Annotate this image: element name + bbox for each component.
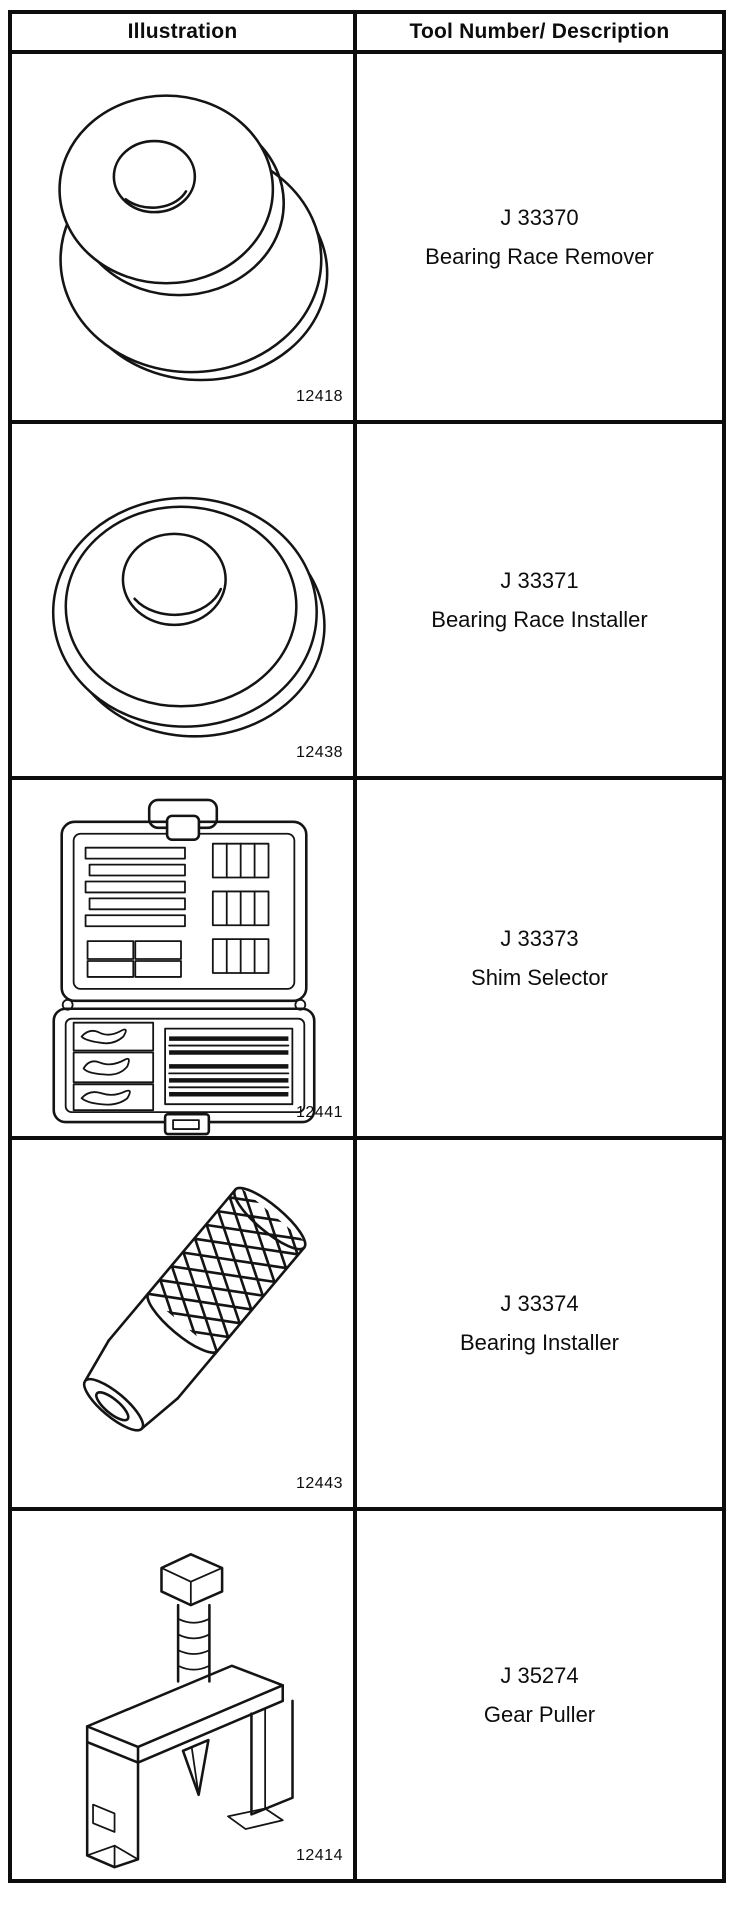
figure-number: 12438 [296, 744, 343, 762]
illustration-cell: 12443 [12, 1140, 357, 1507]
illustration-cell: 12414 [12, 1511, 357, 1879]
figure-number: 12414 [296, 1847, 343, 1865]
table-row: 12418 J 33370 Bearing Race Remover [12, 54, 722, 424]
knurled-bearing-installer-icon [33, 1152, 333, 1492]
tool-cell: J 33373 Shim Selector [357, 780, 722, 1136]
header-illustration: Illustration [12, 14, 357, 50]
scanned-manual-page: Illustration Tool Number/ Description 12… [0, 0, 736, 1910]
tool-cell: J 33370 Bearing Race Remover [357, 54, 722, 420]
tool-number: J 33373 [500, 926, 578, 952]
tool-number: J 33371 [500, 568, 578, 594]
figure-number: 12418 [296, 388, 343, 406]
tool-description: Gear Puller [484, 1702, 595, 1728]
table-row: 12414 J 35274 Gear Puller [12, 1511, 722, 1879]
tool-cell: J 33374 Bearing Installer [357, 1140, 722, 1507]
tool-number: J 35274 [500, 1663, 578, 1689]
tool-description: Shim Selector [471, 965, 608, 991]
shim-selector-case-icon [33, 792, 333, 1136]
gear-puller-icon [33, 1523, 333, 1875]
table-row: 12438 J 33371 Bearing Race Installer [12, 424, 722, 780]
tool-description: Bearing Race Installer [431, 607, 647, 633]
table-header-row: Illustration Tool Number/ Description [12, 14, 722, 54]
tool-description: Bearing Race Remover [425, 244, 654, 270]
illustration-cell: 12441 [12, 780, 357, 1136]
tool-number: J 33370 [500, 205, 578, 231]
bearing-race-installer-icon [33, 436, 333, 746]
table-row: 12441 J 33373 Shim Selector [12, 780, 722, 1140]
illustration-cell: 12418 [12, 54, 357, 420]
table-row: 12443 J 33374 Bearing Installer [12, 1140, 722, 1511]
figure-number: 12443 [296, 1475, 343, 1493]
tool-cell: J 33371 Bearing Race Installer [357, 424, 722, 776]
header-tool-number-description: Tool Number/ Description [357, 14, 722, 50]
special-tools-table: Illustration Tool Number/ Description 12… [8, 10, 726, 1883]
tool-description: Bearing Installer [460, 1330, 619, 1356]
bearing-race-remover-icon [33, 66, 333, 382]
illustration-cell: 12438 [12, 424, 357, 776]
figure-number: 12441 [296, 1104, 343, 1122]
tool-number: J 33374 [500, 1291, 578, 1317]
tool-cell: J 35274 Gear Puller [357, 1511, 722, 1879]
